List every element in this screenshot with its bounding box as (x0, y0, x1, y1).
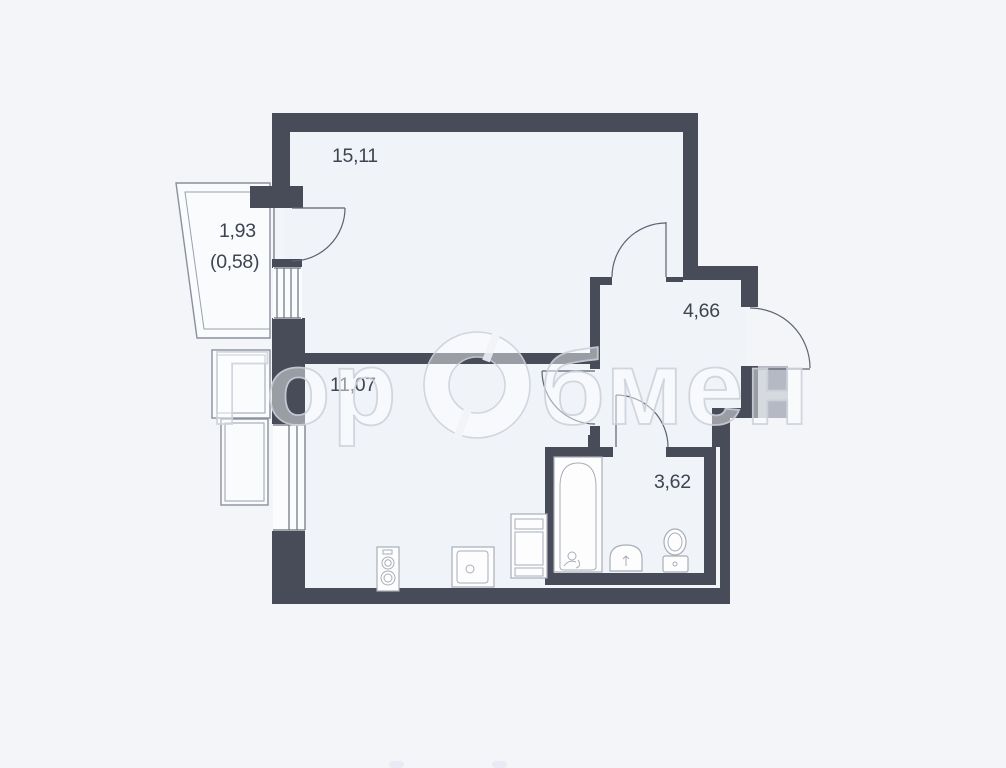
bottom-chips (389, 761, 507, 768)
bathroom-area-label: 3,62 (654, 471, 691, 493)
wall-segment (272, 113, 698, 132)
watermark-text-suffix: бмен (540, 330, 811, 447)
wall-segment (683, 266, 758, 280)
wall-segment (704, 447, 716, 585)
wall-segment (545, 573, 716, 585)
balcony-reduced-area-label: (0,58) (210, 251, 259, 273)
stove-icon (377, 547, 399, 591)
kitchen-sink-icon (452, 547, 494, 587)
washing-machine-icon (511, 514, 547, 578)
wall-segment (272, 113, 290, 188)
floor-plan: 15,11 1,93 (0,58) 11,07 4,66 3,62 Гор бм… (0, 0, 1006, 768)
wall-segment (250, 186, 303, 208)
wall-segment (666, 277, 683, 282)
wall-segment (683, 113, 698, 280)
wall-segment (590, 277, 612, 285)
bottom-chip (389, 761, 404, 768)
wall-gap-line (545, 585, 716, 588)
hallway-area-label: 4,66 (683, 300, 720, 322)
wall-segment (272, 588, 730, 604)
wall-segment (741, 280, 758, 307)
bottom-chip (492, 761, 507, 768)
floor-plan-page: 15,11 1,93 (0,58) 11,07 4,66 3,62 Гор бм… (0, 0, 1006, 768)
wall-segment (545, 447, 613, 457)
bathtub-icon (554, 457, 602, 572)
bathroom-sink-icon (610, 545, 642, 571)
balcony-area-label: 1,93 (219, 220, 256, 242)
watermark-text-prefix: Гор (210, 330, 399, 447)
living-room-area-label: 15,11 (332, 145, 378, 167)
wall-gap-line (716, 447, 720, 588)
